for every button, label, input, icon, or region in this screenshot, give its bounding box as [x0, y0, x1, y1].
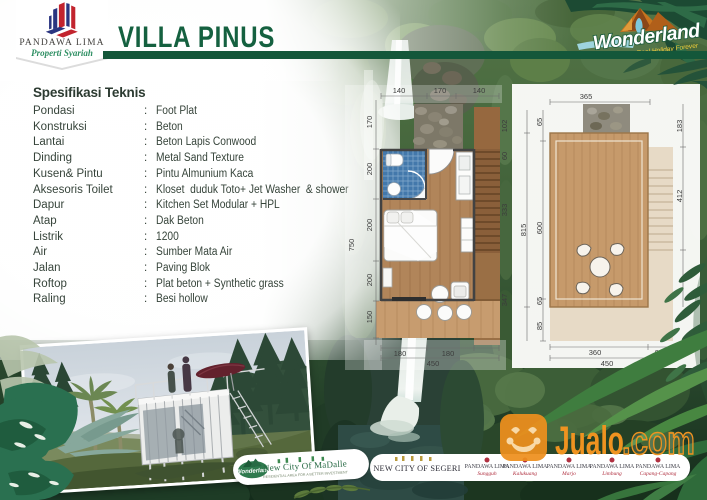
svg-text:Kalukuang: Kalukuang	[512, 471, 537, 477]
svg-text:365: 365	[580, 92, 593, 101]
svg-text:750: 750	[347, 239, 356, 252]
svg-text:140: 140	[473, 86, 486, 95]
svg-text:Properti Syariah: Properti Syariah	[31, 48, 93, 58]
svg-text:150: 150	[365, 311, 374, 324]
svg-text:60: 60	[500, 152, 509, 160]
svg-text:Jualo: Jualo	[555, 419, 624, 464]
svg-text:412: 412	[675, 190, 684, 203]
svg-text:170: 170	[365, 116, 374, 129]
svg-text:102: 102	[500, 120, 509, 133]
svg-text:Sungguh: Sungguh	[477, 471, 497, 477]
svg-text:815: 815	[519, 224, 528, 237]
svg-text:140: 140	[393, 86, 406, 95]
svg-text:200: 200	[365, 219, 374, 232]
svg-text:450: 450	[427, 359, 440, 368]
svg-text:VILLA PINUS: VILLA PINUS	[118, 19, 275, 53]
svg-text:200: 200	[365, 274, 374, 287]
svg-text:170: 170	[434, 86, 447, 95]
svg-text:333: 333	[500, 204, 509, 217]
svg-text:Marjo: Marjo	[561, 471, 576, 477]
svg-text:183: 183	[675, 120, 684, 133]
svg-text:65: 65	[535, 118, 544, 126]
svg-text:.com: .com	[622, 418, 695, 463]
svg-text:180: 180	[442, 349, 455, 358]
svg-text:PANDAWA LIMA: PANDAWA LIMA	[19, 38, 104, 48]
svg-text:600: 600	[535, 222, 544, 235]
svg-text:Limbung: Limbung	[601, 471, 622, 477]
svg-text:Capang-Capang: Capang-Capang	[640, 471, 677, 477]
svg-text:NEW CITY OF SEGERI: NEW CITY OF SEGERI	[373, 464, 460, 473]
svg-text:200: 200	[365, 163, 374, 176]
svg-text:180: 180	[394, 349, 407, 358]
svg-text:347: 347	[500, 294, 509, 307]
svg-text:65: 65	[535, 297, 544, 305]
